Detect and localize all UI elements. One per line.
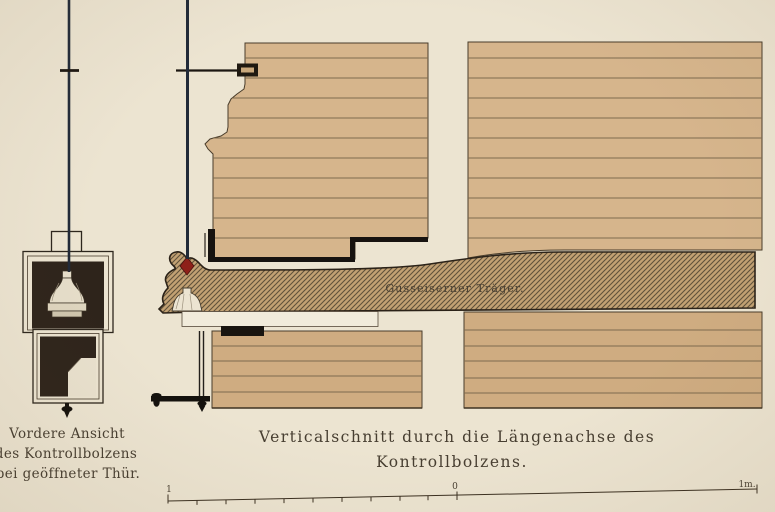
anchor-plate-slot [241, 68, 254, 73]
main-caption-line-2: Kontrollbolzens. [376, 453, 528, 471]
engraved-plate: Gusseiserner Träger. [0, 0, 775, 512]
beam-label: Gusseiserner Träger. [385, 282, 524, 295]
left-caption-line-2: des Kontrollbolzens [0, 446, 137, 462]
scale-label-left: 1 [166, 485, 172, 495]
masonry-lower-left [212, 331, 422, 408]
left-caption-line-3: bei geöffneter Thür. [0, 466, 140, 482]
scale-label-center: 0 [452, 482, 458, 492]
masonry-upper-right [468, 42, 762, 258]
frame-bar [221, 326, 264, 336]
casing-neck [52, 232, 82, 253]
plate-drawing: Gusseiserner Träger. [0, 0, 775, 512]
left-caption-line-1: Vordere Ansicht [8, 426, 125, 442]
masonry-lower-right [464, 312, 762, 408]
bracket-screw [197, 401, 206, 406]
main-caption-line-1: Verticalschnitt durch die Längenachse de… [258, 428, 655, 446]
scale-label-right: 1m. [738, 480, 755, 490]
bearing-plate [182, 312, 378, 327]
